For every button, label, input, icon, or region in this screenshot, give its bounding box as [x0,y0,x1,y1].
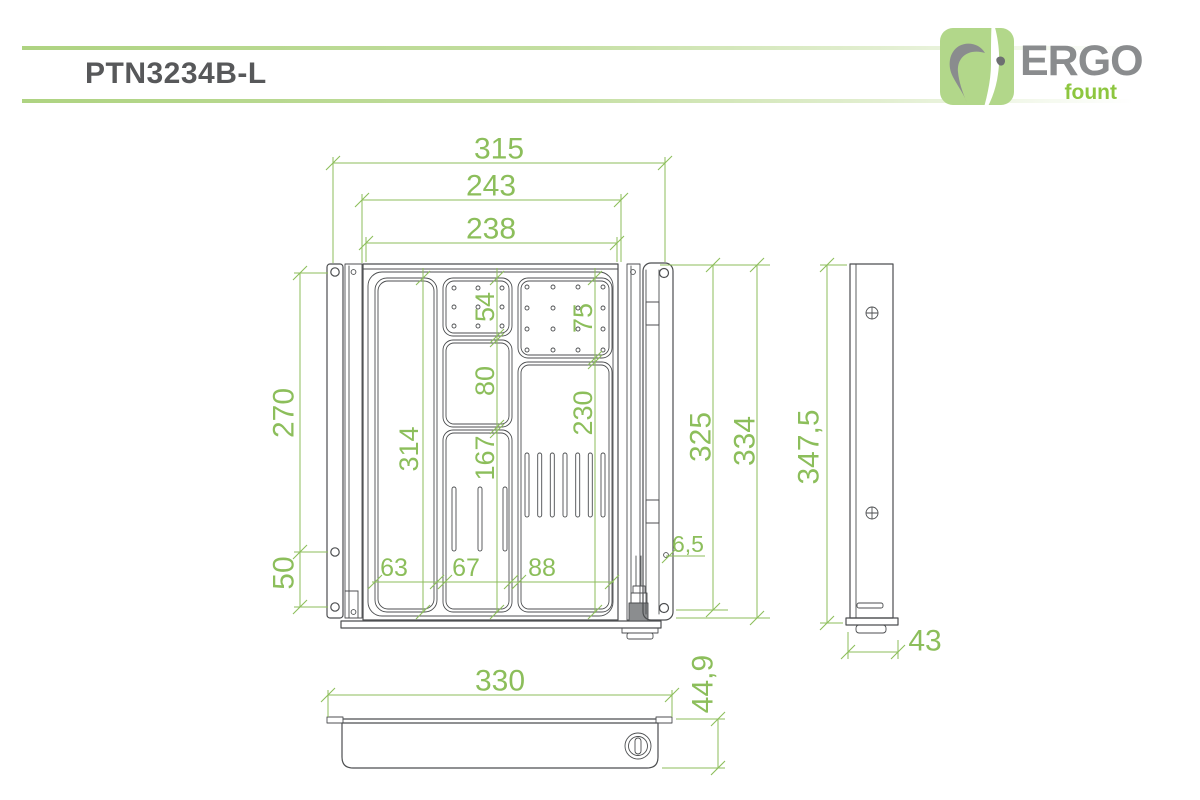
base-plate [341,621,661,628]
pen-slots-3 [452,487,507,551]
dim-ticks [321,688,725,775]
drawing-sheet: PTN3234B-L ERGO fount [0,0,1200,800]
dim-bracket-height: 334 [729,416,762,466]
tab-left [327,717,343,723]
dim-mid-compartment-width: 67 [452,554,480,582]
dim-bracket-inner-height: 325 [685,412,718,462]
dim-right-compartment-width: 88 [528,554,556,582]
dim-side-depth: 43 [908,625,941,658]
dims-front-inner: 314 54 80 167 75 230 63 67 88 [368,268,619,619]
right-rail [627,264,640,620]
hinge-knuckle-top [646,302,659,325]
dims-bottom: 330 44,9 [321,655,725,775]
dim-hole-span-lower: 50 [268,556,301,589]
rail-hole-top [351,270,356,275]
hinge-bracket [643,263,673,620]
dim-hole-diameter: 6,5 [672,531,704,557]
dim-hole-span-upper: 270 [268,388,301,438]
bracket-hole-bottom [660,604,669,613]
front-view [327,263,673,639]
dim-mid-compartment-height: 80 [470,366,500,396]
dim-bottom-depth: 44,9 [687,655,720,713]
dims-front-left: 270 50 [268,266,329,614]
left-mounting-plate [327,264,343,618]
bracket-hole-top [660,269,669,278]
dim-right-compartment-height: 230 [568,390,598,435]
bottom-view [327,717,672,768]
dim-tray-width: 238 [466,213,516,246]
side-view [846,264,898,633]
tab-right [656,717,672,723]
vent-slots-7 [525,453,605,517]
lock-face [625,733,651,759]
dim-pinboard-height: 75 [568,303,598,333]
mount-hole-top [331,268,339,276]
dims-side: 347,5 43 [793,258,942,659]
dim-body-width: 243 [466,170,516,203]
side-flange [846,618,898,625]
dim-left-compartment-width: 63 [380,554,408,582]
dim-overall-width: 315 [474,133,524,166]
dim-pen-compartment-height: 167 [470,435,500,480]
dim-bottom-width: 330 [475,665,525,698]
dims-front-top: 315 243 238 [326,133,672,264]
screw-top [866,307,878,319]
side-lock-cap [856,625,886,633]
screw-bottom [866,507,878,519]
dims-front-right: 325 334 6,5 [660,258,770,625]
side-slot [857,603,883,608]
mount-hole-bottom [331,603,339,611]
dim-ticks [820,258,905,659]
rail-hole-bottom [351,610,356,615]
dim-small-compartment-height: 54 [470,292,500,322]
left-rail [345,264,362,618]
hinge-knuckle-bottom [646,500,659,523]
technical-drawing: 315 243 238 270 50 [0,0,1200,800]
dim-side-height: 347,5 [793,409,826,484]
mount-hole-mid [331,548,339,556]
dim-left-compartment-height: 314 [394,426,424,471]
